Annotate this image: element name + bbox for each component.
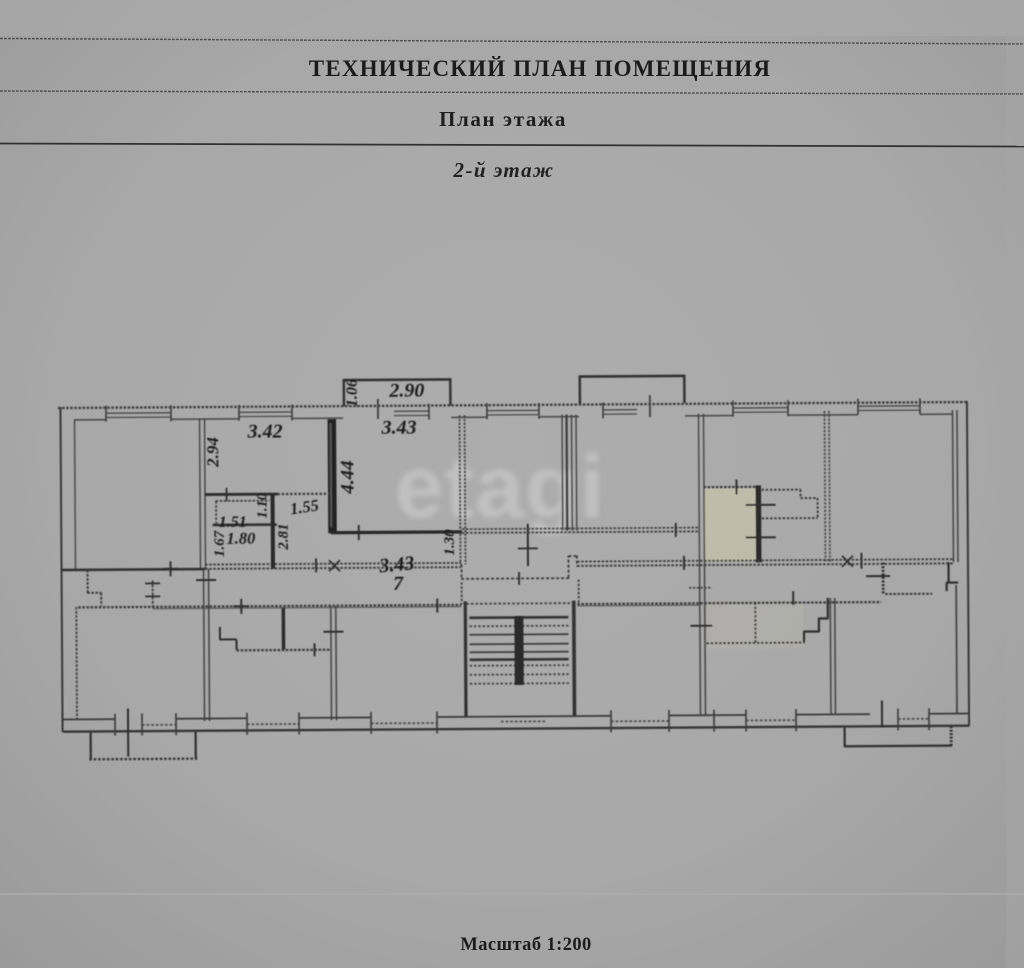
svg-text:3.42: 3.42 — [247, 421, 283, 443]
svg-text:ТЕХНИЧЕСКИЙ ПЛАН ПОМЕЩЕНИЯ: ТЕХНИЧЕСКИЙ ПЛАН ПОМЕЩЕНИЯ — [309, 56, 771, 81]
svg-text:1.10: 1.10 — [255, 493, 271, 518]
svg-text:1.30: 1.30 — [442, 529, 458, 556]
svg-text:1.06: 1.06 — [344, 379, 361, 407]
svg-text:План этажа: План этажа — [439, 107, 567, 131]
svg-text:Масштаб 1:200: Масштаб 1:200 — [460, 935, 591, 955]
svg-text:1.80: 1.80 — [226, 529, 255, 548]
svg-text:4.44: 4.44 — [337, 460, 358, 494]
svg-text:7: 7 — [393, 573, 404, 595]
svg-text:2.81: 2.81 — [276, 523, 292, 550]
svg-text:2-й этаж: 2-й этаж — [453, 158, 555, 182]
svg-text:1.67: 1.67 — [212, 530, 228, 557]
svg-text:etagi: etagi — [395, 437, 605, 536]
svg-text:2.94: 2.94 — [203, 437, 222, 468]
svg-text:3.43: 3.43 — [381, 417, 417, 439]
svg-text:2.90: 2.90 — [388, 380, 424, 402]
